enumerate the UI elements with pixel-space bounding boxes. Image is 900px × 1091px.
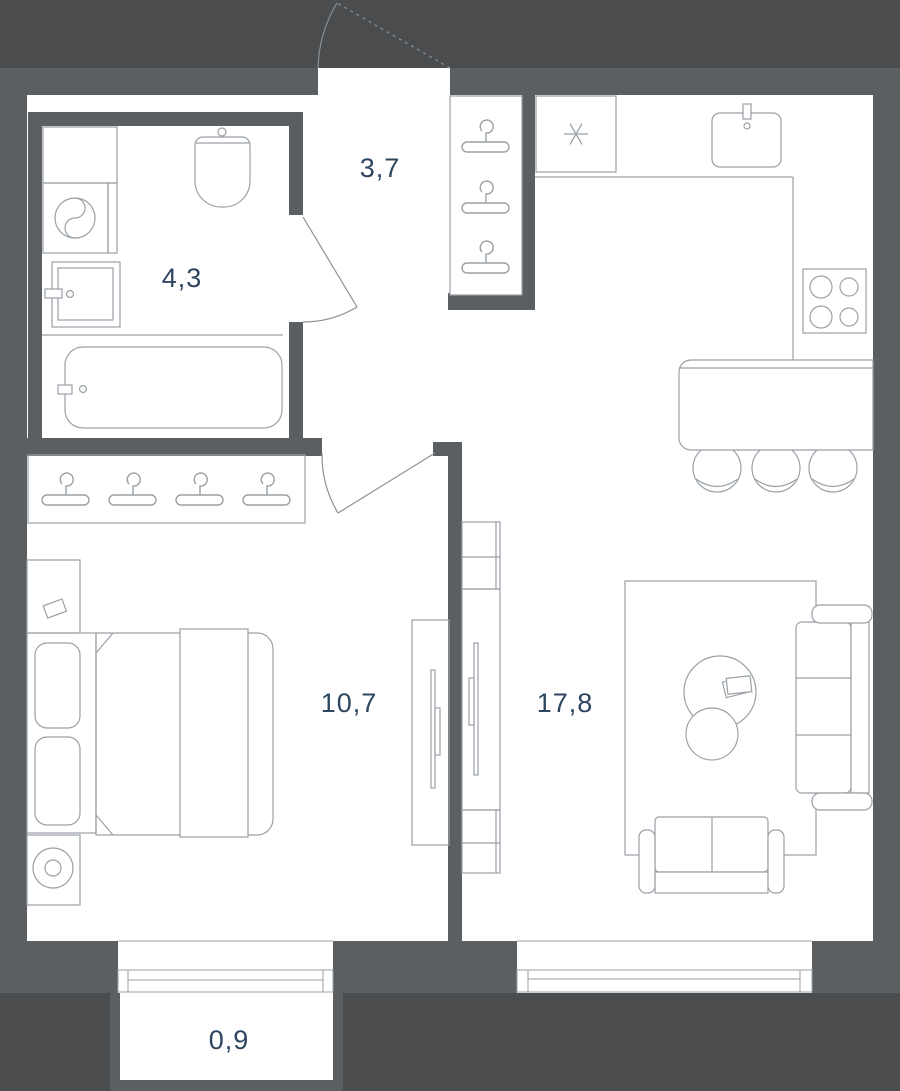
wall-balcony-rail-right xyxy=(333,993,343,1091)
sofa-backrest xyxy=(851,622,869,793)
tv-screen xyxy=(474,643,478,775)
wall-middle-partition xyxy=(448,442,462,941)
wall-bathroom-left xyxy=(28,112,42,456)
hallway-closet xyxy=(450,96,522,295)
bathroom-area-label: 4,3 xyxy=(162,263,203,293)
floor-living-window-zone xyxy=(517,941,812,993)
wall-bottom-middle xyxy=(333,941,517,993)
wall-balcony-rail-left xyxy=(110,993,120,1091)
balcony-area-label: 0,9 xyxy=(209,1025,250,1055)
sofa-large xyxy=(796,605,872,810)
floor-entry-opening xyxy=(318,68,450,95)
wall-bottom-right xyxy=(812,941,873,993)
sofa-armrest xyxy=(812,793,872,810)
wall-bottom-left xyxy=(0,941,118,993)
living-kitchen-area-label: 17,8 xyxy=(537,688,594,718)
blanket xyxy=(180,629,248,837)
door-leaf xyxy=(337,3,450,68)
bar-stool xyxy=(752,444,800,492)
hallway-area-label: 3,7 xyxy=(360,153,401,183)
wall-right xyxy=(873,95,900,993)
sofa-armrest xyxy=(768,830,784,893)
tv-bracket xyxy=(469,678,474,725)
bar-stool xyxy=(809,444,857,492)
entrance-door xyxy=(318,3,450,68)
sofa-armrest xyxy=(639,830,655,893)
wall-left xyxy=(0,95,27,993)
tv-bracket xyxy=(435,708,440,755)
sofa-small xyxy=(639,817,784,893)
sofa-seat-front xyxy=(655,872,768,893)
sofa-armrest xyxy=(812,605,872,623)
wall-bathroom-right-lower xyxy=(289,322,303,438)
coffee-table-small xyxy=(686,708,738,760)
wall-bathroom-top xyxy=(28,112,303,126)
bar-stool xyxy=(693,444,741,492)
kitchen-island xyxy=(679,360,873,450)
bedroom-area-label: 10,7 xyxy=(321,688,378,718)
sofa-seat xyxy=(796,622,851,793)
wall-closet-side xyxy=(522,95,535,310)
wall-bathroom-right-upper xyxy=(289,126,303,215)
wall-top-left xyxy=(0,68,318,95)
wall-top-right xyxy=(450,68,900,95)
wall-balcony-rail-bottom xyxy=(110,1080,343,1091)
floor-plan-page: 3,7 4,3 10,7 17,8 0,9 xyxy=(0,0,900,1091)
tv-screen xyxy=(431,670,435,788)
wall-bathroom-bedroom-band xyxy=(27,438,322,456)
floor-plan-canvas: 3,7 4,3 10,7 17,8 0,9 xyxy=(0,0,900,1091)
door-swing-arc xyxy=(318,3,337,68)
magazine xyxy=(726,676,752,694)
floor-balcony xyxy=(118,941,333,1080)
